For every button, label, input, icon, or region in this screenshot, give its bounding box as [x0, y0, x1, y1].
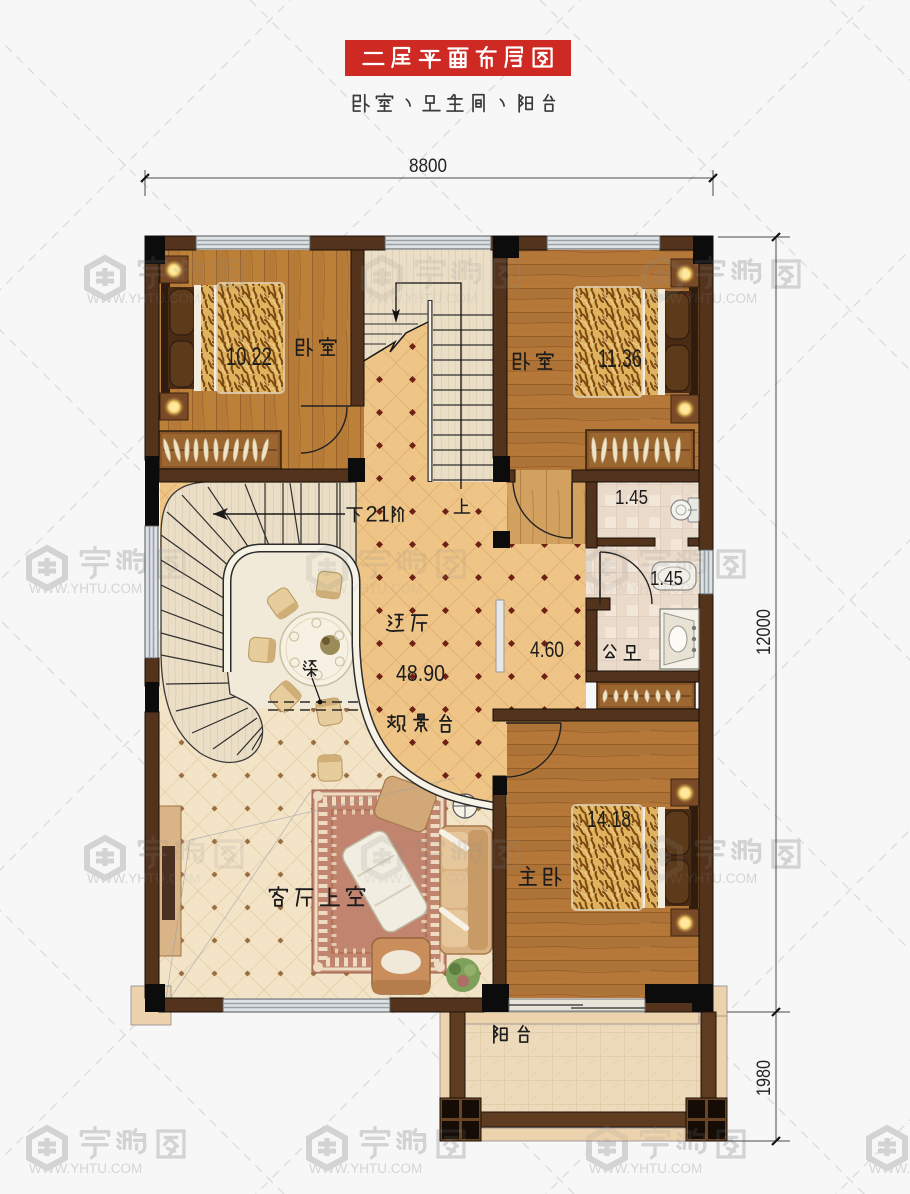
- svg-text:WWW.YHTU.COM: WWW.YHTU.COM: [87, 291, 200, 306]
- svg-text:WWW.YHTU.COM: WWW.YHTU.COM: [589, 581, 702, 596]
- svg-text:WWW.YHTU.COM: WWW.YHTU.COM: [364, 871, 477, 886]
- svg-text:12000: 12000: [754, 609, 775, 655]
- svg-text:1980: 1980: [754, 1060, 775, 1096]
- svg-text:WWW.YHTU.COM: WWW.YHTU.COM: [644, 871, 757, 886]
- svg-text:11.36: 11.36: [598, 345, 642, 373]
- svg-text:48.90: 48.90: [396, 660, 445, 686]
- svg-text:21: 21: [366, 501, 390, 526]
- svg-text:14.18: 14.18: [587, 806, 631, 832]
- svg-text:WWW.YHTU.COM: WWW.YHTU.COM: [29, 1161, 142, 1176]
- svg-text:WWW.YHTU.COM: WWW.YHTU.COM: [29, 581, 142, 596]
- svg-text:WWW.YHTU.COM: WWW.YHTU.COM: [364, 291, 477, 306]
- svg-text:8800: 8800: [409, 156, 447, 177]
- svg-text:WWW.YHTU.COM: WWW.YHTU.COM: [589, 1161, 702, 1176]
- svg-text:WWW.YHTU.COM: WWW.YHTU.COM: [309, 1161, 422, 1176]
- svg-text:WWW.YHTU.COM: WWW.YHTU.COM: [644, 291, 757, 306]
- svg-text:WWW.YHTU.COM: WWW.YHTU.COM: [309, 581, 422, 596]
- svg-text:WWW.YHTU.COM: WWW.YHTU.COM: [869, 1161, 910, 1176]
- svg-text:10.22: 10.22: [226, 343, 272, 371]
- svg-text:4.60: 4.60: [530, 637, 564, 662]
- svg-text:1.45: 1.45: [615, 487, 648, 509]
- svg-text:1.45: 1.45: [650, 568, 683, 590]
- svg-text:WWW.YHTU.COM: WWW.YHTU.COM: [87, 871, 200, 886]
